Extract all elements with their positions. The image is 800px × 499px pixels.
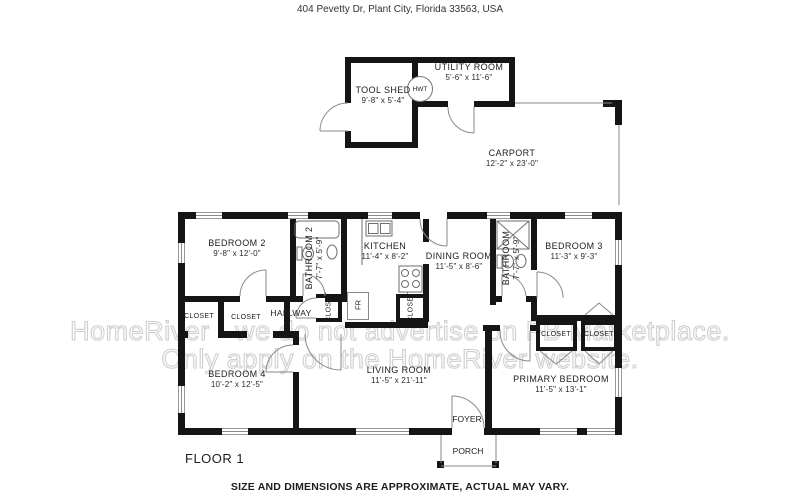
stove [399, 266, 422, 292]
bifold-door [585, 303, 613, 315]
room-dims: 11'-3" x 9'-3" [545, 252, 603, 261]
room-name: BATHROOM 2 [304, 227, 314, 290]
room-label-bedroom-2: BEDROOM 2 9'-8" x 12'-0" [208, 238, 266, 258]
room-dims: 7'-7" x 5'-9" [512, 231, 521, 286]
address-title: 404 Pevetty Dr, Plant City, Florida 3356… [297, 4, 503, 15]
room-label-bathroom: BATHROOM 7'-7" x 5'-9" [501, 231, 521, 286]
stove-burner [402, 281, 409, 288]
room-name: PRIMARY BEDROOM [513, 374, 609, 384]
room-dims: 11'-5" x 13'-1" [513, 385, 609, 394]
room-label-primary-bedroom: PRIMARY BEDROOM 11'-5" x 13'-1" [513, 374, 609, 394]
room-name: BEDROOM 2 [208, 238, 266, 248]
room-label-bedroom-3: BEDROOM 3 11'-3" x 9'-3" [545, 241, 603, 261]
room-dims: 5'-6" x 11'-6" [435, 73, 504, 82]
room-dims: 9'-8" x 12'-0" [208, 249, 266, 258]
room-label-porch: PORCH [453, 446, 484, 456]
room-name: KITCHEN [362, 241, 409, 251]
disclaimer-text: SIZE AND DIMENSIONS ARE APPROXIMATE, ACT… [231, 481, 569, 493]
door-arc [305, 334, 341, 370]
closet-label: CLOSET [541, 331, 571, 338]
room-label-bathroom-2: BATHROOM 2 7'-7" x 5'-9" [304, 227, 324, 290]
room-dims: 10'-2" x 12'-5" [208, 380, 266, 389]
room-name: LIVING ROOM [367, 365, 431, 375]
floorplan-canvas: HomeRiver - we do not advertise on FB Ma… [0, 0, 800, 499]
closet-label: CLOSET [184, 313, 214, 320]
room-name: UTILITY ROOM [435, 62, 504, 72]
door-arc [537, 272, 563, 298]
stove-burner [413, 281, 420, 288]
fridge-label: FR [354, 300, 363, 310]
room-name: TOOL SHED [355, 85, 410, 95]
room-label-bedroom-4: BEDROOM 4 10'-2" x 12'-5" [208, 369, 266, 389]
room-label-dining-room: DINING ROOM 11'-5" x 8'-6" [426, 251, 492, 271]
closet-label: CLOSET [584, 331, 614, 338]
room-name: BEDROOM 4 [208, 369, 266, 379]
room-label-tool-shed: TOOL SHED 9'-8" x 5'-4" [355, 85, 410, 105]
room-name: DINING ROOM [426, 251, 492, 261]
room-dims: 11'-5" x 21'-11" [367, 376, 431, 385]
room-label-carport: CARPORT 12'-2" x 23'-0" [486, 148, 538, 168]
closet-label: CLOSET [408, 292, 415, 322]
closet-label: CLOSET [231, 314, 261, 321]
sink-basin [381, 224, 391, 234]
door-arc [448, 107, 474, 133]
room-dims: 11'-4" x 8'-2" [362, 252, 409, 261]
toilet-tank [297, 247, 302, 260]
room-label-hallway: HALLWAY [270, 308, 311, 318]
room-label-foyer: FOYER [452, 414, 481, 424]
room-label-kitchen: KITCHEN 11'-4" x 8'-2" [362, 241, 409, 261]
door-arc [240, 270, 266, 296]
room-name: BATHROOM [501, 231, 511, 286]
sink-basin [369, 224, 379, 234]
room-label-living-room: LIVING ROOM 11'-5" x 21'-11" [367, 365, 431, 385]
closet-label: CLOSET [326, 292, 333, 322]
bifold-door [585, 351, 613, 364]
room-dims: 9'-8" x 5'-4" [355, 96, 410, 105]
door-arc [320, 103, 348, 131]
stove-burner [402, 270, 409, 277]
room-dims: 12'-2" x 23'-0" [486, 159, 538, 168]
room-dims: 7'-7" x 5'-9" [315, 227, 324, 290]
room-name: CARPORT [486, 148, 538, 158]
room-dims: 11'-5" x 8'-6" [426, 262, 492, 271]
bathroom-sink [327, 245, 337, 259]
bifold-door [540, 351, 572, 364]
room-label-utility-room: UTILITY ROOM 5'-6" x 11'-6" [435, 62, 504, 82]
room-name: BEDROOM 3 [545, 241, 603, 251]
door-arc [266, 345, 293, 372]
floor-label: FLOOR 1 [185, 451, 244, 466]
door-arc [500, 331, 530, 361]
door-arc [420, 219, 447, 246]
stove-burner [413, 270, 420, 277]
